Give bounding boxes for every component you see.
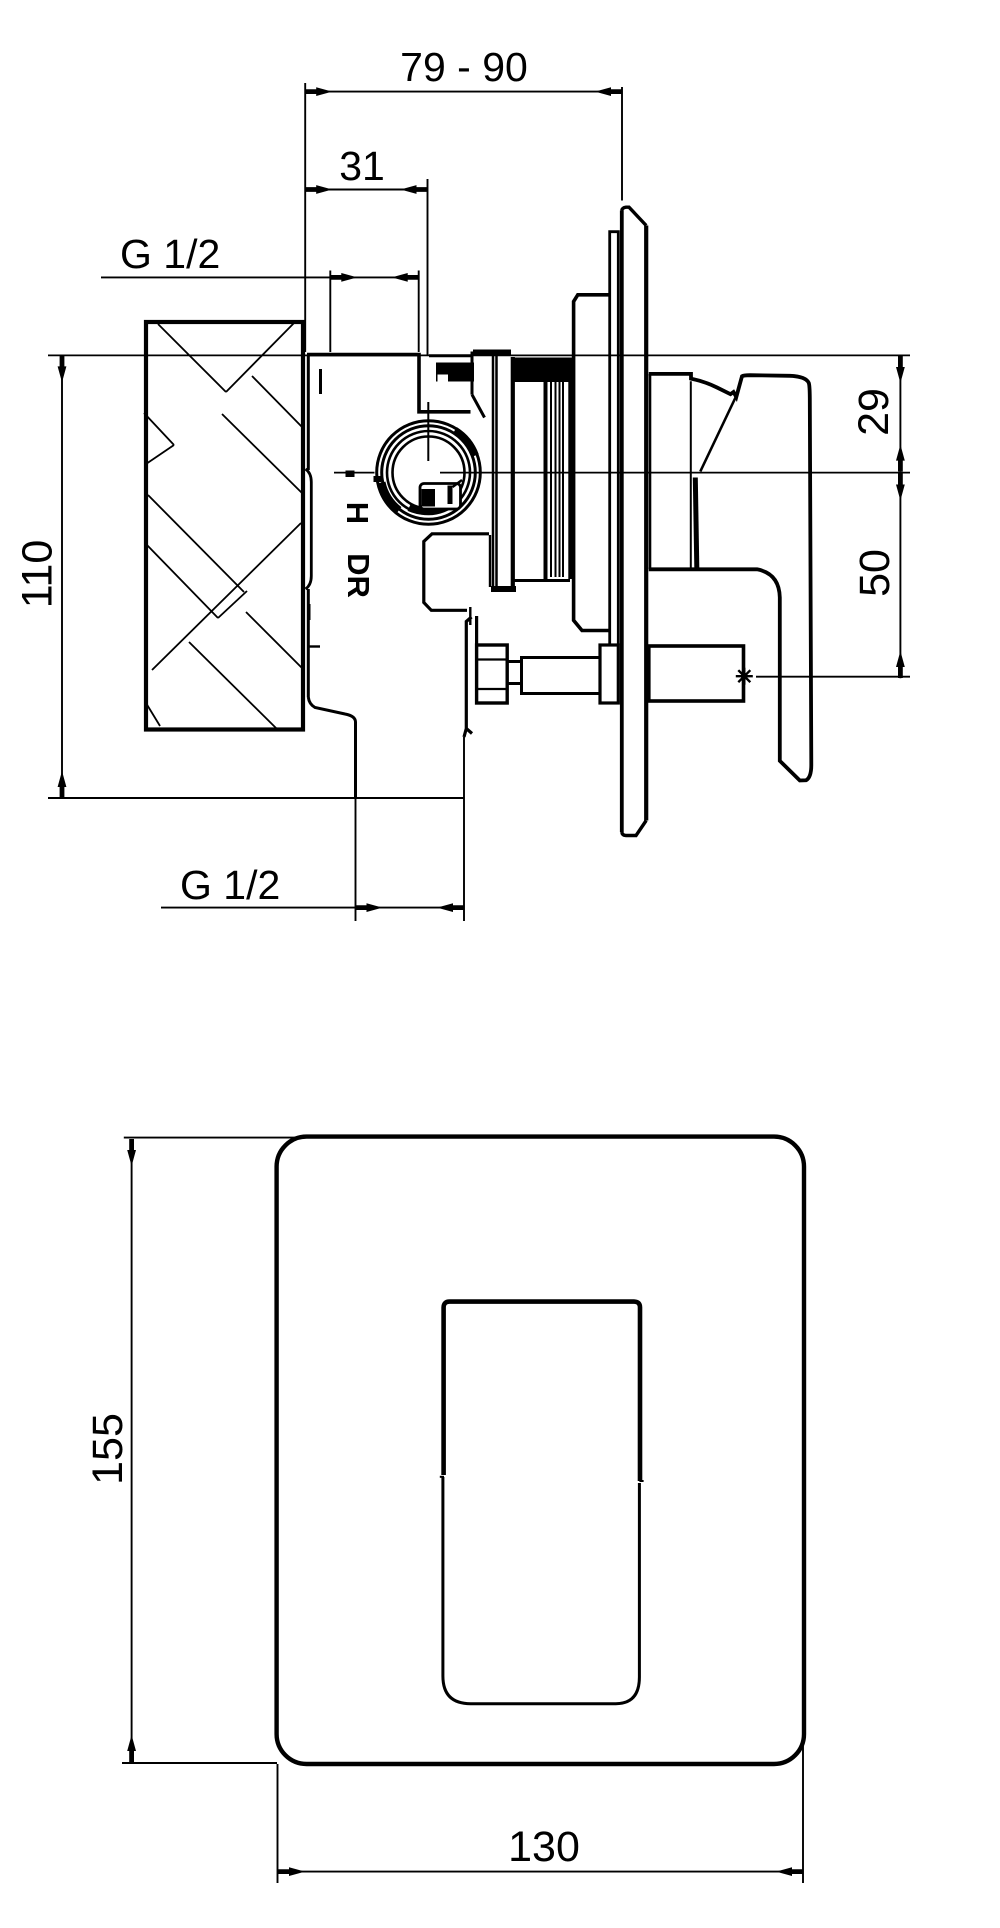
svg-text:DR: DR	[341, 553, 376, 598]
svg-text:130: 130	[508, 1823, 580, 1871]
svg-text:79 - 90: 79 - 90	[400, 44, 528, 90]
svg-text:G 1/2: G 1/2	[120, 231, 220, 277]
svg-text:H: H	[340, 502, 375, 524]
svg-text:29: 29	[850, 388, 898, 436]
svg-text:110: 110	[14, 540, 62, 609]
svg-text:155: 155	[84, 1413, 132, 1485]
svg-text:50: 50	[851, 549, 899, 597]
svg-text:G 1/2: G 1/2	[180, 862, 280, 908]
svg-text:31: 31	[339, 143, 385, 189]
